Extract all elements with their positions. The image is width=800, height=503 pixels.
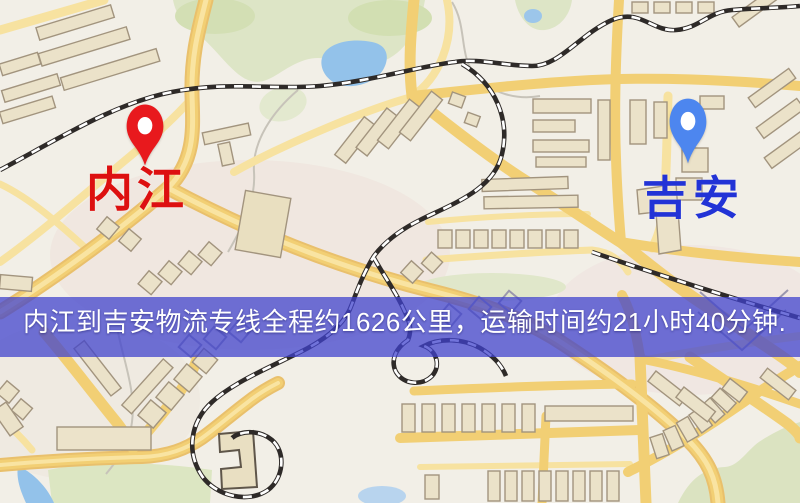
destination-pin[interactable] (667, 96, 709, 166)
origin-city-label: 内江 (86, 168, 188, 215)
destination-city-label: 吉安 (642, 176, 744, 222)
route-info-text: 内江到吉安物流专线全程约1626公里，运输时间约21小时40分钟. (23, 302, 786, 339)
logistics-route-map: 内江 吉安 内江到吉安物流专线全程约1626公里，运输时间约21小时40分钟. (0, 0, 800, 503)
origin-pin[interactable] (124, 102, 166, 168)
blue-map-pin-icon (667, 96, 709, 166)
route-info-banner: 内江到吉安物流专线全程约1626公里，运输时间约21小时40分钟. (0, 297, 800, 357)
red-map-pin-icon (124, 102, 166, 168)
map-background (0, 0, 800, 503)
